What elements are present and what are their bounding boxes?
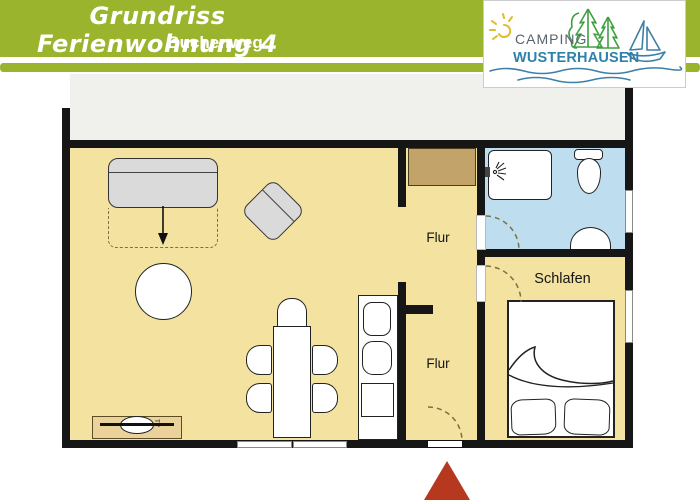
bathroom-door-opening [476, 215, 486, 250]
wall-living-hall-upper [398, 148, 406, 207]
wall-hall-bedroom [477, 302, 485, 448]
pillow-right [563, 398, 610, 436]
sun-icon [490, 14, 512, 39]
sofa-bed-extension-dashed [108, 208, 218, 248]
bathroom-window [625, 190, 633, 233]
kitchen-sink-basin-2 [362, 341, 392, 375]
dining-chair-head [277, 298, 307, 328]
wall-bottom [62, 440, 633, 448]
wardrobe [408, 148, 476, 186]
wall-left [62, 108, 70, 448]
bedroom-door-opening [476, 265, 486, 302]
wall-hall-bath-upper [477, 148, 485, 215]
pillow-left [510, 398, 556, 436]
tv-screen [100, 423, 174, 426]
floorplan-page: Grundriss Ferienwohnung 4 Buchenweg CAMP… [0, 0, 700, 500]
label-flur-lower: Flur [406, 356, 470, 371]
waves-icon [490, 67, 682, 83]
entrance-door-opening [427, 440, 463, 448]
wall-bath-bedroom [477, 249, 633, 257]
sofa [108, 158, 218, 208]
sailboat-icon [627, 21, 665, 61]
dining-chair-left-2 [246, 383, 272, 413]
wall-hall-stub [398, 305, 433, 314]
dining-chair-right-2 [312, 383, 338, 413]
wall-top [62, 140, 633, 148]
living-window-right [293, 441, 347, 448]
camping-logo: CAMPING WUSTERHAUSEN [483, 0, 686, 88]
logo-line1: CAMPING [515, 31, 587, 47]
dining-chair-right-1 [312, 345, 338, 375]
label-schlafen: Schlafen [510, 271, 615, 287]
shower [488, 150, 552, 200]
living-window-left [237, 441, 292, 448]
kitchen-sink-basin-1 [363, 302, 391, 336]
wall-right [625, 88, 633, 448]
page-subtitle: Buchenweg [70, 33, 360, 53]
bedroom-window [625, 290, 633, 343]
dining-chair-left-1 [246, 345, 272, 375]
logo-graphic: CAMPING WUSTERHAUSEN [484, 1, 685, 87]
label-flur-upper: Flur [406, 230, 470, 245]
dining-table [273, 326, 311, 438]
entrance-arrow [424, 461, 470, 500]
shower-valve [485, 167, 490, 177]
round-table [135, 263, 192, 320]
tv-label: TV [153, 419, 159, 427]
logo-line2: WUSTERHAUSEN [513, 50, 639, 66]
sofa-backrest-seam [109, 159, 217, 173]
stove [361, 383, 394, 417]
